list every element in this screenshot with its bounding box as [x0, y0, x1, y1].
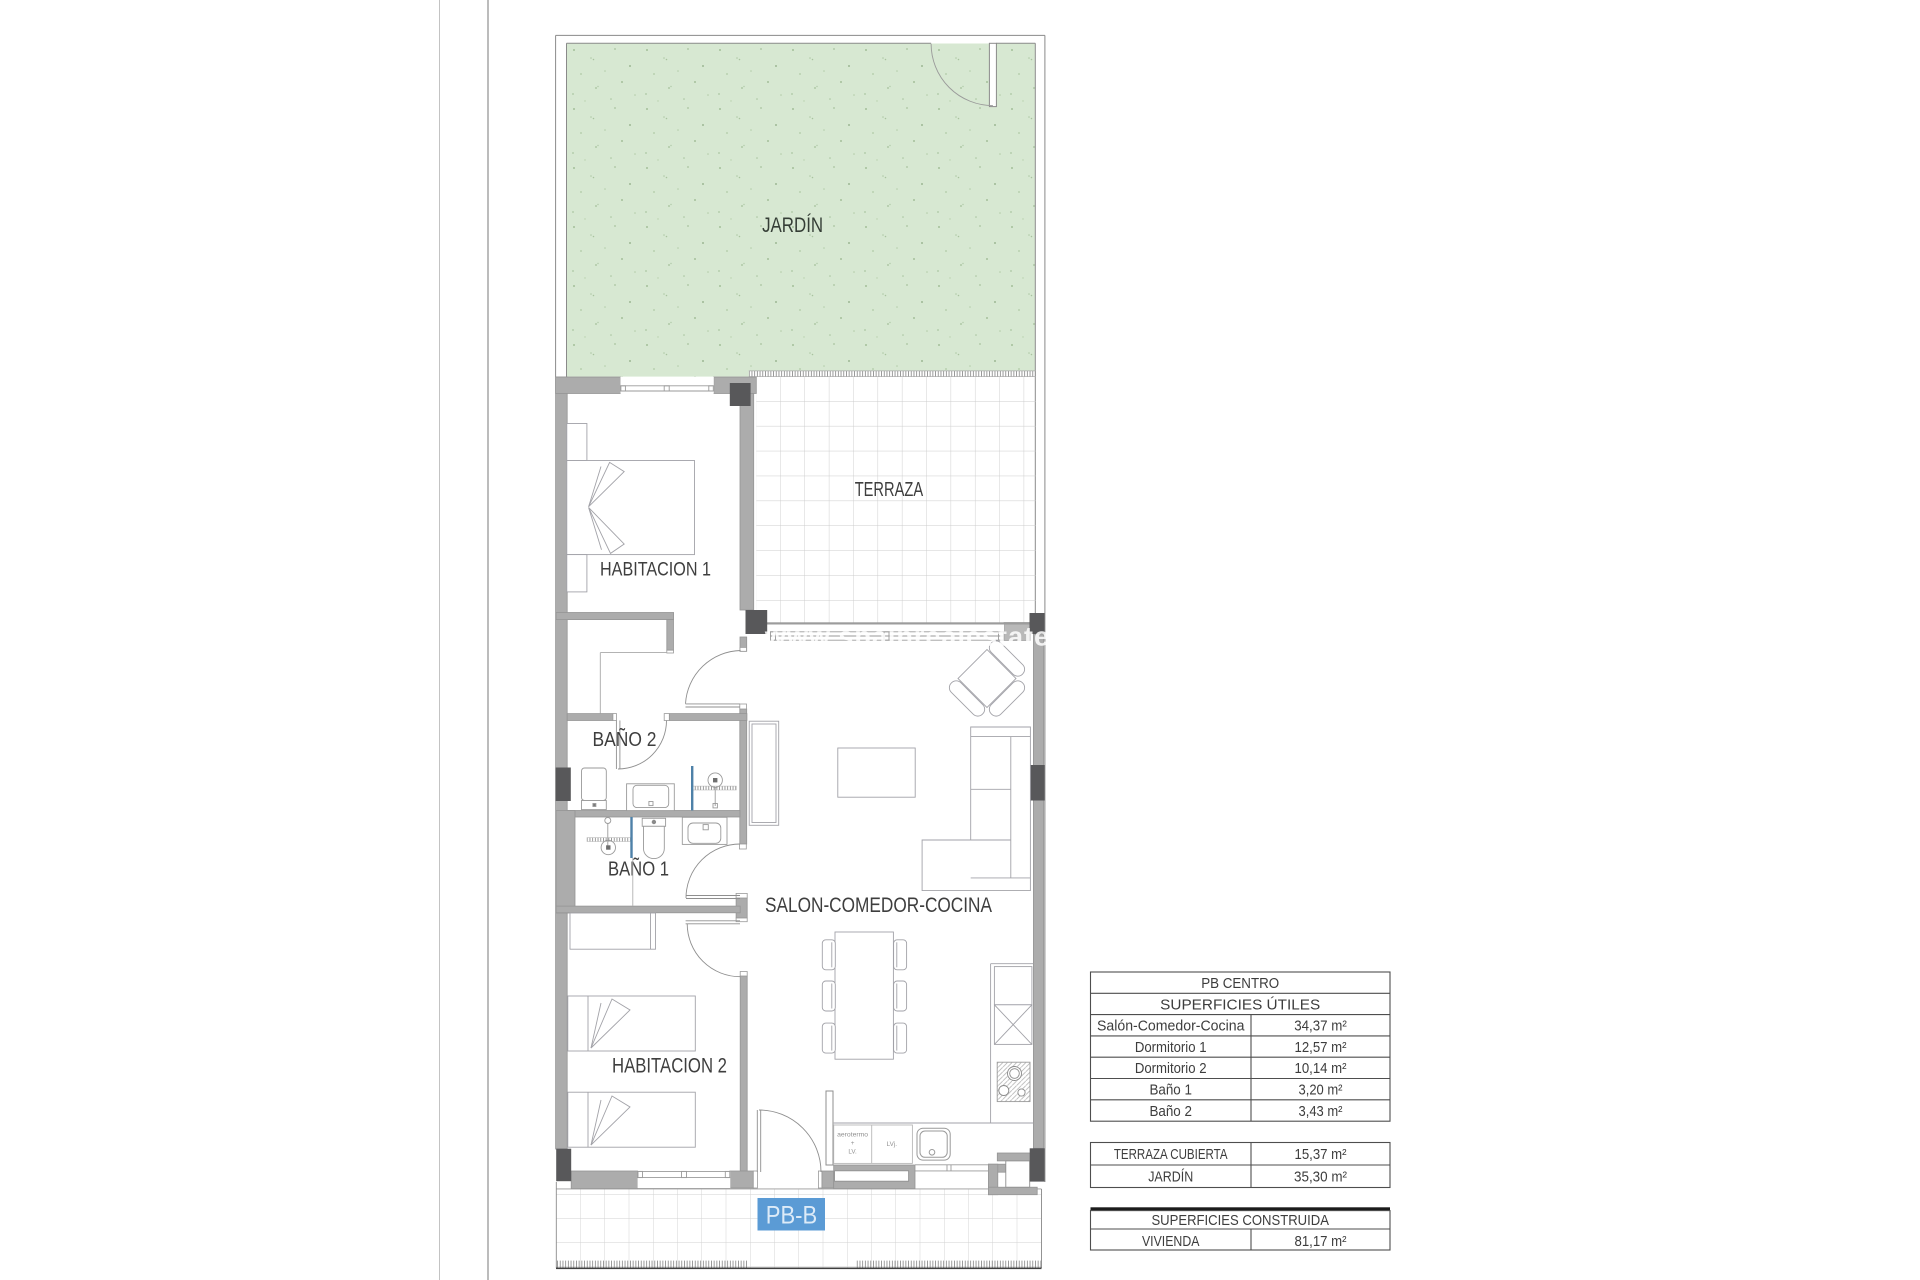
svg-text:LVj.: LVj.: [887, 1141, 898, 1148]
svg-text:HABITACION 1: HABITACION 1: [600, 558, 711, 580]
svg-text:+: +: [851, 1140, 855, 1147]
svg-text:SUPERFICIES CONSTRUIDA: SUPERFICIES CONSTRUIDA: [1151, 1213, 1329, 1229]
svg-text:10,14 m²: 10,14 m²: [1295, 1061, 1347, 1077]
svg-text:TERRAZA CUBIERTA: TERRAZA CUBIERTA: [1114, 1147, 1228, 1163]
svg-text:JARDÍN: JARDÍN: [762, 214, 823, 237]
svg-text:SALON-COMEDOR-COCINA: SALON-COMEDOR-COCINA: [765, 894, 992, 917]
svg-text:BAÑO 1: BAÑO 1: [608, 857, 669, 881]
svg-text:BAÑO 2: BAÑO 2: [593, 727, 657, 751]
svg-text:JARDÍN: JARDÍN: [1148, 1169, 1193, 1186]
svg-text:VIVIENDA: VIVIENDA: [1142, 1234, 1200, 1250]
svg-text:PB-B: PB-B: [766, 1202, 818, 1230]
svg-text:34,37 m²: 34,37 m²: [1294, 1019, 1347, 1035]
svg-text:Dormitorio 2: Dormitorio 2: [1135, 1061, 1207, 1077]
svg-text:35,30 m²: 35,30 m²: [1294, 1170, 1347, 1186]
svg-text:Baño 1: Baño 1: [1149, 1083, 1192, 1099]
svg-text:aerotermo: aerotermo: [837, 1132, 869, 1139]
svg-text:TERRAZA: TERRAZA: [855, 479, 924, 501]
svg-text:Baño 2: Baño 2: [1149, 1104, 1192, 1120]
svg-text:HABITACION 2: HABITACION 2: [612, 1055, 727, 1078]
svg-text:3,20 m²: 3,20 m²: [1299, 1083, 1343, 1099]
svg-text:Dormitorio 1: Dormitorio 1: [1135, 1040, 1207, 1056]
svg-text:www.spainrealestate: www.spainrealestate: [764, 622, 1050, 652]
svg-text:12,57 m²: 12,57 m²: [1295, 1040, 1347, 1056]
svg-text:81,17 m²: 81,17 m²: [1295, 1234, 1347, 1250]
svg-text:Salón-Comedor-Cocina: Salón-Comedor-Cocina: [1097, 1019, 1245, 1035]
svg-text:PB CENTRO: PB CENTRO: [1201, 976, 1279, 992]
svg-text:LV.: LV.: [848, 1149, 857, 1156]
svg-text:15,37 m²: 15,37 m²: [1295, 1147, 1347, 1163]
svg-text:3,43 m²: 3,43 m²: [1299, 1104, 1343, 1120]
svg-text:SUPERFICIES ÚTILES: SUPERFICIES ÚTILES: [1160, 996, 1320, 1013]
